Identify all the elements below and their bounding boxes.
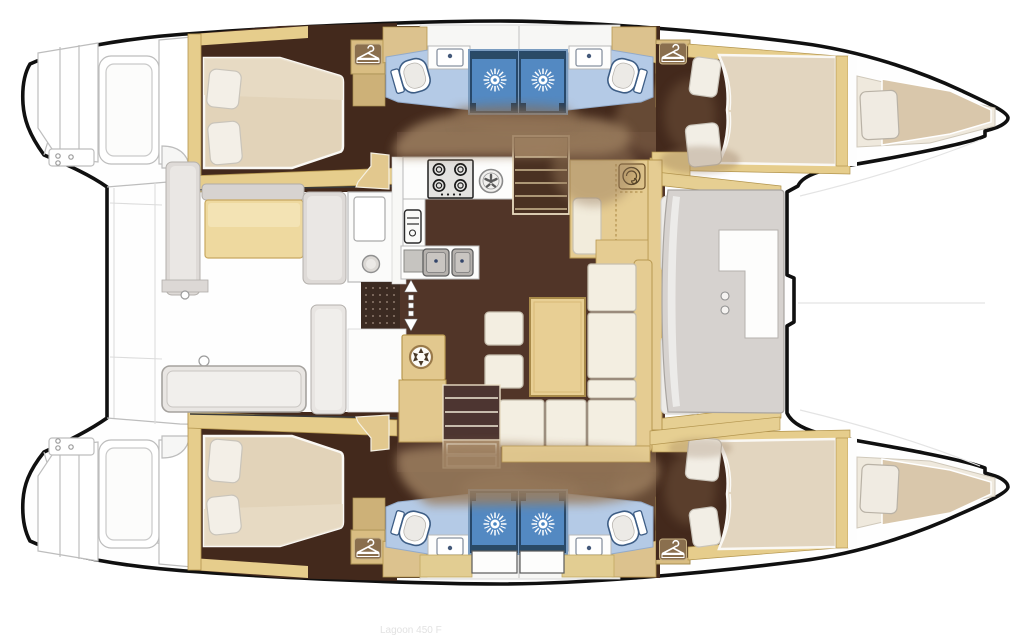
svg-text:Lagoon 450 F: Lagoon 450 F	[380, 625, 442, 636]
